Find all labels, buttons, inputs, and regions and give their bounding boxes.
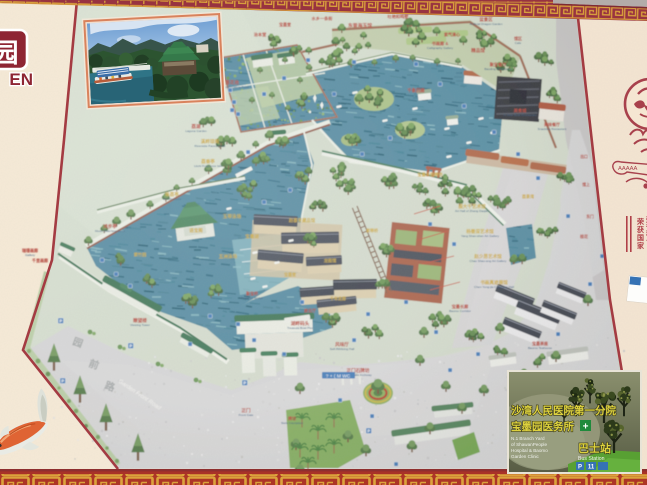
svg-text:N.1 Branch Yard: N.1 Branch Yard [511, 436, 545, 441]
svg-text:宝墨园医务所: 宝墨园医务所 [511, 420, 574, 433]
svg-text:Garden Clinic: Garden Clinic [511, 454, 540, 459]
svg-text:Hospital & Baomo: Hospital & Baomo [511, 448, 548, 453]
svg-text:Bus Station: Bus Station [578, 456, 605, 462]
svg-text:of ShawanPeople: of ShawanPeople [511, 442, 547, 447]
svg-text:AAAAA: AAAAA [618, 166, 637, 172]
svg-text:+: + [583, 422, 589, 433]
svg-text:沙湾人民医院第一分院: 沙湾人民医院第一分院 [511, 404, 616, 417]
svg-text:11: 11 [588, 465, 595, 471]
svg-text:EN: EN [9, 70, 33, 89]
svg-text:P: P [578, 465, 582, 471]
svg-text:园: 园 [0, 38, 19, 68]
svg-text:巴士站: 巴士站 [578, 441, 611, 455]
